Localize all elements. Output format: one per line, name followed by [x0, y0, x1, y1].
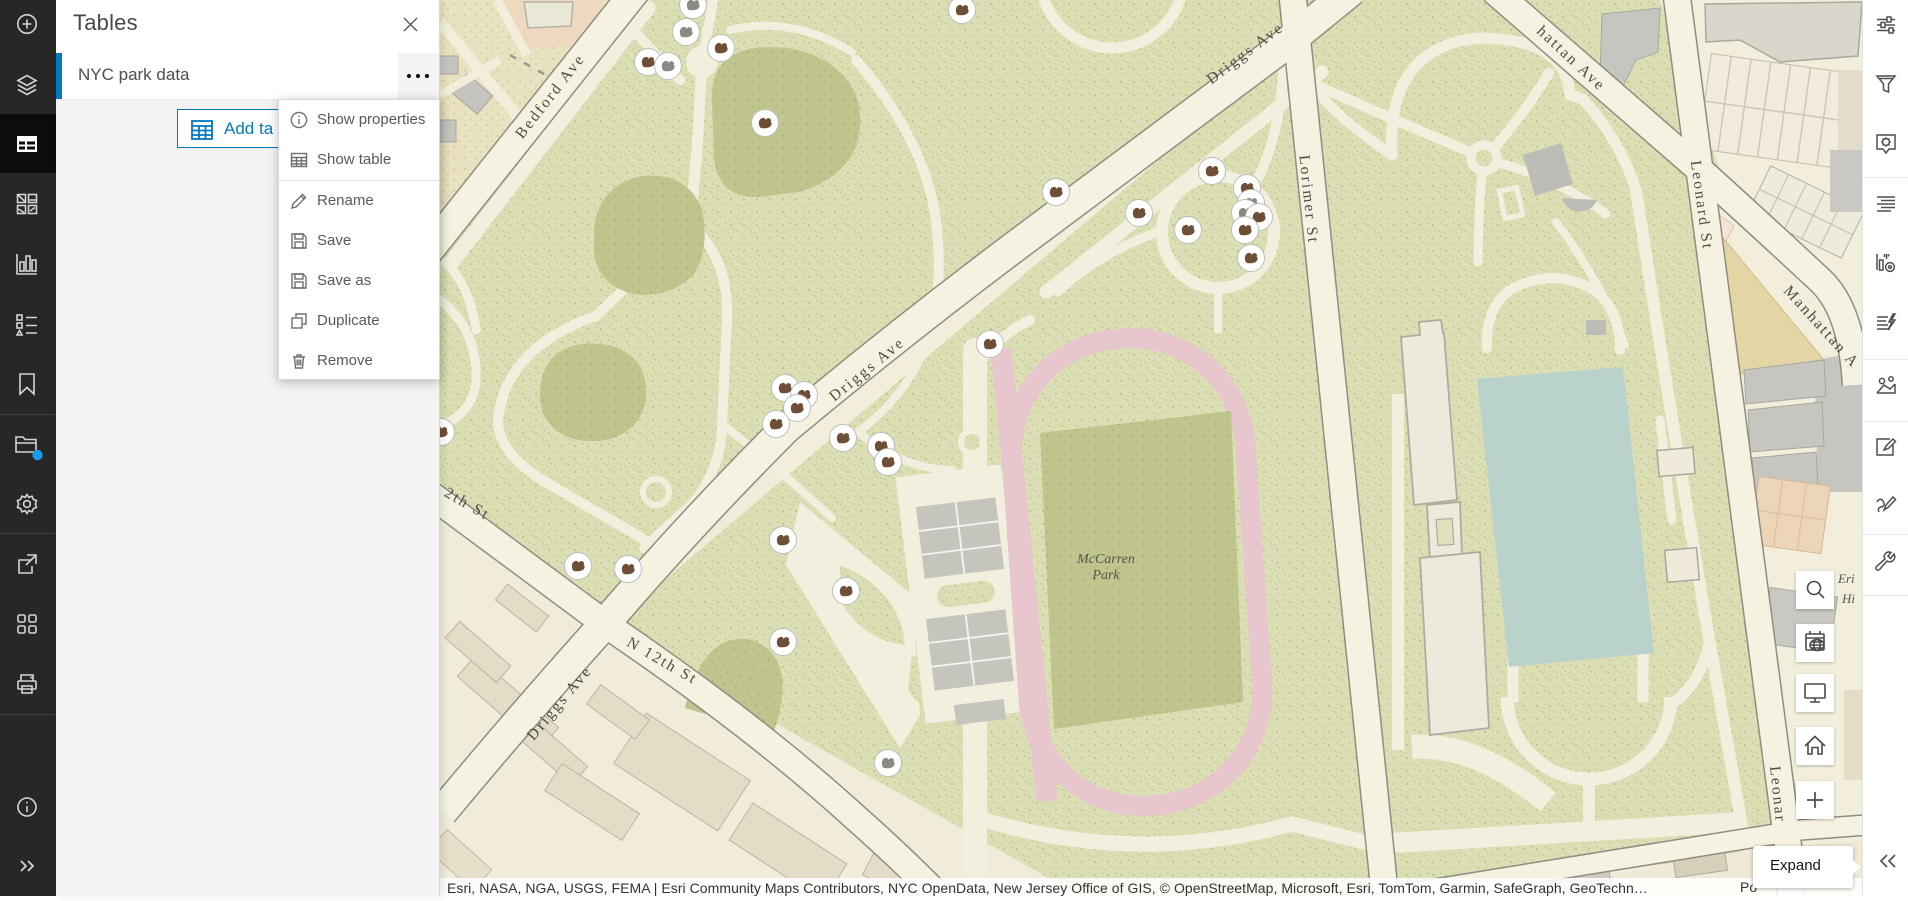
svg-text:Park: Park [1091, 568, 1120, 583]
svg-text:Hi: Hi [1841, 591, 1855, 606]
svg-text:McCarren: McCarren [1076, 552, 1135, 567]
svg-text:Eri: Eri [1837, 571, 1855, 586]
